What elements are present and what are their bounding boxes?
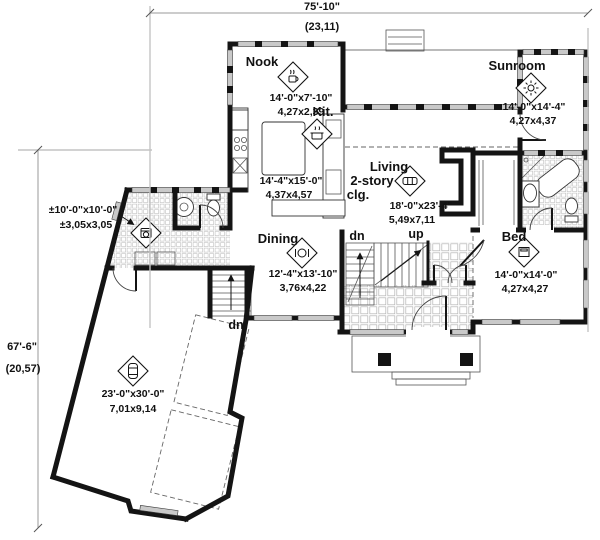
- mudroom-size-ft: ±10'-0"x10'-0": [49, 204, 118, 216]
- mudroom-size-m: ±3,05x3,05: [60, 219, 113, 231]
- kitchen-size-ft: 14'-4"x15'-0": [260, 175, 323, 187]
- living-label-3: clg.: [347, 187, 369, 202]
- porch-column: [460, 353, 473, 366]
- car-icon: [118, 356, 148, 386]
- living-size-m: 5,49x7,11: [389, 214, 435, 226]
- garage-size-ft: 23'-0"x30'-0": [102, 388, 165, 400]
- living-label-2: 2-story: [350, 173, 394, 188]
- nook-label: Nook: [246, 54, 279, 69]
- overall-height-ft: 67'-6": [7, 341, 37, 353]
- overall-height-m: (20,57): [6, 363, 41, 375]
- coffee-cup-icon: [278, 62, 308, 92]
- nook-size-ft: 14'-0"x7'-10": [270, 92, 333, 104]
- porch-steps: [392, 372, 470, 379]
- kitchen-fixtures: [231, 108, 345, 218]
- front-porch: [352, 336, 480, 385]
- sunroom-size-m: 4,27x4,37: [510, 115, 557, 127]
- garage-door: [113, 268, 136, 291]
- sunroom-size-ft: 14'-0"x14'-4": [503, 101, 566, 113]
- fridge: [231, 110, 248, 130]
- bath-sink: [524, 184, 537, 202]
- bed-size-m: 4,27x4,27: [502, 283, 549, 295]
- main-stairs-up: [374, 243, 428, 287]
- garage-size-m: 7,01x9,14: [110, 403, 157, 415]
- deck-steps: [386, 30, 424, 51]
- powder-toilet: [207, 194, 220, 216]
- overall-width-ft: 75'-10": [304, 1, 340, 13]
- dining-size-m: 3,76x4,22: [280, 282, 327, 294]
- kitchen-island: [262, 122, 305, 175]
- floor-plan-canvas: Nook 14'-0"x7'-10" 4,27x2,39 Kit. 14'-4"…: [0, 0, 600, 540]
- kitchen-size-m: 4,37x4,57: [266, 189, 313, 201]
- stairs-down-label: dn: [349, 229, 364, 243]
- dining-label: Dining: [258, 231, 298, 246]
- floor-plan-drawing: Nook 14'-0"x7'-10" 4,27x2,39 Kit. 14'-4"…: [0, 0, 600, 540]
- garage-stairs-down-label: dn: [228, 318, 243, 332]
- bed-size-ft: 14'-0"x14'-0": [495, 269, 558, 281]
- kitchen-label: Kit.: [313, 104, 334, 119]
- bed-closet: [479, 160, 514, 226]
- kitchen-peninsula: [272, 200, 345, 216]
- stairs-up-label: up: [408, 227, 424, 241]
- porch-column: [378, 353, 391, 366]
- living-label-1: Living: [370, 159, 408, 174]
- sunroom-label: Sunroom: [488, 58, 545, 73]
- dining-size-ft: 12'-4"x13'-10": [269, 268, 338, 280]
- bath-toilet: [565, 198, 578, 222]
- bed-label: Bed: [502, 229, 527, 244]
- living-size-ft: 18'-0"x23'-4": [390, 200, 453, 212]
- overall-width-m: (23,11): [305, 21, 340, 33]
